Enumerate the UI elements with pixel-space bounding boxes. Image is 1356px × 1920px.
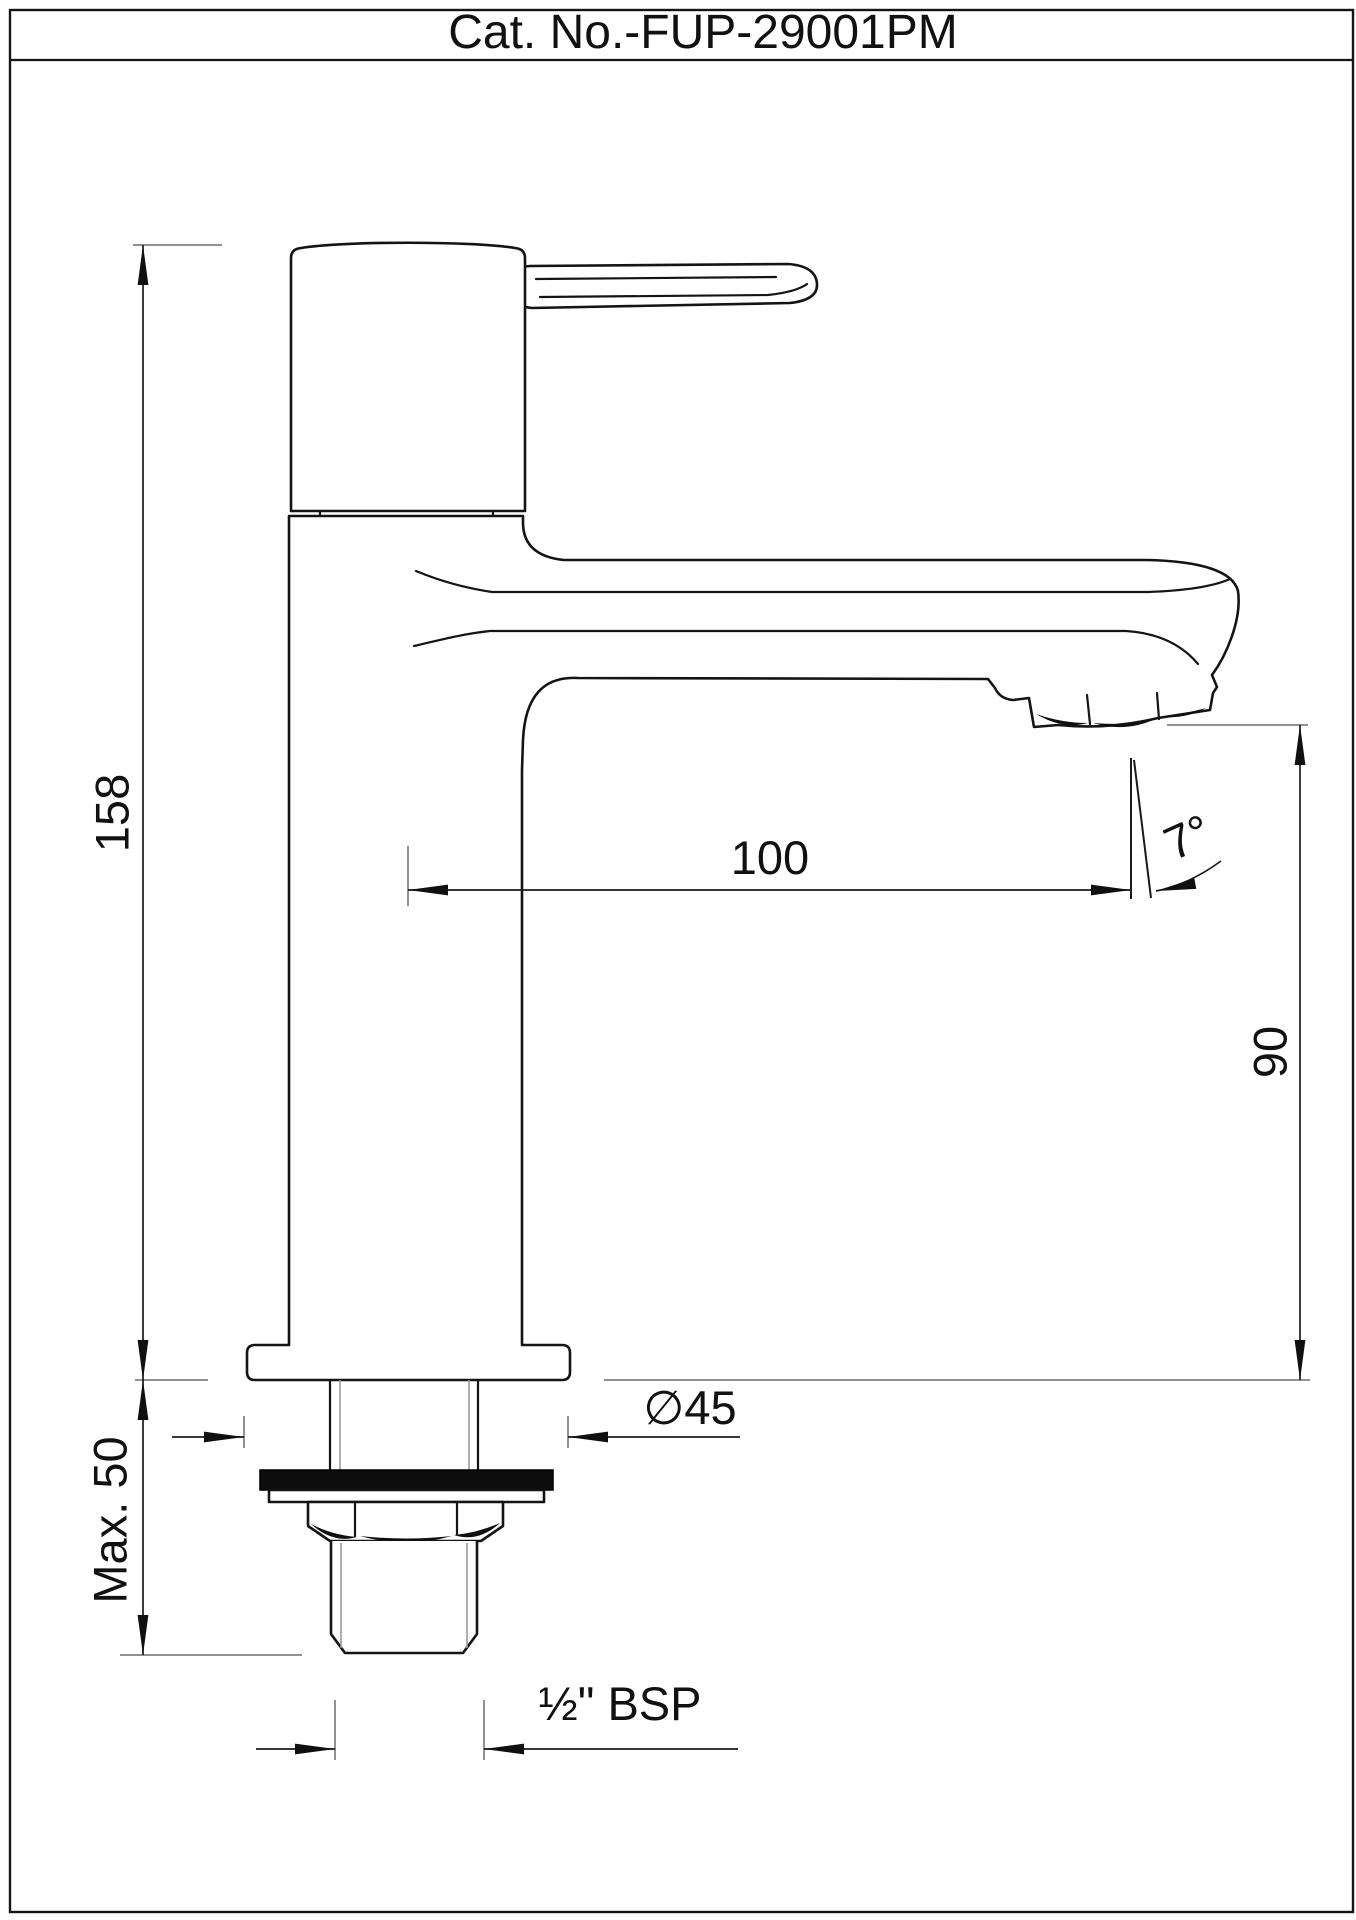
shank-upper xyxy=(330,1380,478,1470)
dim-max-mounting: Max. 50 xyxy=(83,1380,302,1655)
flat-washer xyxy=(269,1490,544,1502)
body-dome xyxy=(291,243,525,511)
dim-90-label: 90 xyxy=(1243,1026,1296,1078)
dim-7deg-label: 7° xyxy=(1156,804,1219,871)
rubber-washer xyxy=(260,1470,553,1490)
technical-drawing: Cat. No.-FUP-29001PM xyxy=(0,0,1356,1920)
angle-outlet-axis xyxy=(1134,760,1151,898)
hex-nut xyxy=(308,1502,503,1543)
shank-lower-outline xyxy=(331,1541,477,1653)
dim-dia45-label: ∅45 xyxy=(643,1381,736,1434)
page-title: Cat. No.-FUP-29001PM xyxy=(448,6,958,59)
dim-inlet-thread: ½" BSP xyxy=(256,1677,738,1760)
shank-lower xyxy=(331,1541,477,1653)
dim-flange-diameter: ∅45 xyxy=(172,1381,740,1448)
handle-lever xyxy=(507,264,817,308)
body-spout-flange-outline xyxy=(247,516,1239,1380)
dim-overall-height: 158 xyxy=(85,245,222,1380)
dim-spout-angle: 7° xyxy=(1131,758,1221,899)
handle-outline xyxy=(507,264,817,308)
dim-max50-label: Max. 50 xyxy=(83,1436,136,1603)
drawing-sheet: Cat. No.-FUP-29001PM xyxy=(0,0,1356,1920)
dim-bsp-label: ½" BSP xyxy=(539,1677,702,1730)
faucet-elevation xyxy=(247,243,1239,1653)
angle-arc xyxy=(1156,861,1221,891)
dim-100-label: 100 xyxy=(731,831,809,884)
dim-158-label: 158 xyxy=(85,774,138,852)
